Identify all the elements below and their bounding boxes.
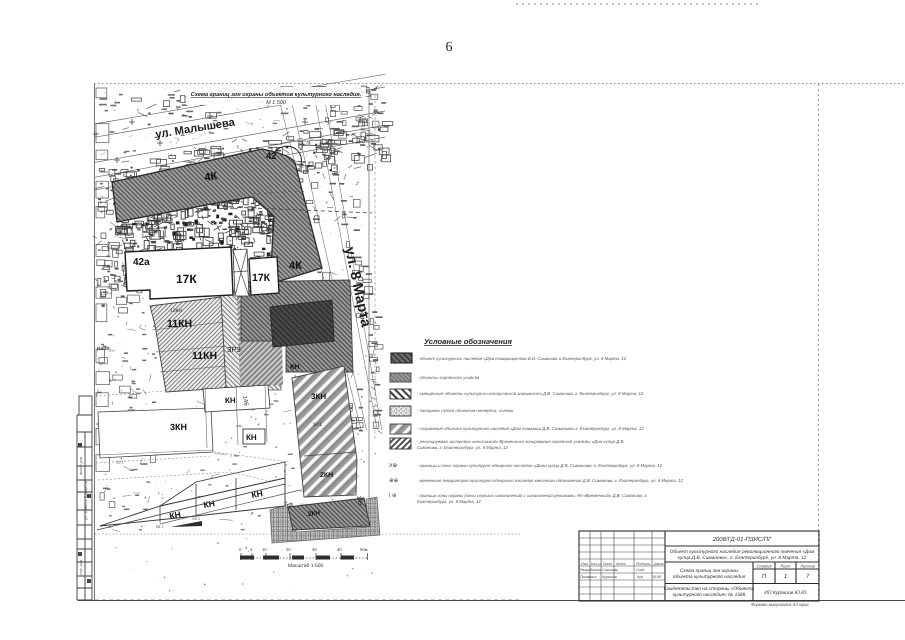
- svg-text:Формат выпускался А3 офис: Формат выпускался А3 офис: [751, 602, 810, 607]
- svg-text:Условные обозначения: Условные обозначения: [424, 337, 512, 346]
- svg-text:Стадия: Стадия: [757, 564, 773, 569]
- svg-text:Согл: Согл: [636, 568, 644, 572]
- svg-text:40: 40: [337, 547, 342, 552]
- svg-text:торг. дом: торг. дом: [79, 559, 83, 575]
- svg-text:П: П: [762, 573, 767, 580]
- svg-text:2008/ГД-01-ПЗИС/ПГ: 2008/ГД-01-ПЗИС/ПГ: [712, 536, 773, 543]
- svg-text:Схема границ зон охраны: Схема границ зон охраны: [680, 568, 739, 574]
- svg-text:жилой дом: жилой дом: [79, 456, 83, 475]
- svg-text:КН: КН: [225, 396, 236, 405]
- svg-text:Схема границ зон охраны объект: Схема границ зон охраны объектов культур…: [191, 91, 362, 98]
- svg-text:объекта культурного наследия: объекта культурного наследия: [673, 574, 746, 580]
- svg-text:КН: КН: [246, 433, 257, 442]
- svg-text:ЗРЗ: ЗРЗ: [227, 345, 241, 354]
- svg-text:- регулируемая застройка «несл: - регулируемая застройка «несложной» Вре…: [417, 439, 625, 444]
- svg-text:Х⊕: Х⊕: [389, 463, 398, 469]
- svg-text:Симанова, г. Екатеринбург, ул.: Симанова, г. Екатеринбург, ул. 8 Марта, …: [417, 445, 508, 450]
- svg-text:- объект культурного наследия: - объект культурного наследия «Дом товар…: [417, 356, 627, 361]
- svg-text:- граница зоны охраны (зоны ст: - граница зоны охраны (зоны строгих огра…: [417, 493, 648, 498]
- svg-text:Лист: Лист: [779, 564, 791, 569]
- svg-text:11КН: 11КН: [167, 318, 192, 330]
- svg-text:13КН: 13КН: [170, 308, 182, 314]
- svg-text:Масштаб 1:500: Масштаб 1:500: [288, 563, 324, 569]
- svg-text:№док: №док: [616, 562, 626, 566]
- svg-text:6: 6: [446, 40, 453, 55]
- svg-text:ИП Курашов Ю.Ю.: ИП Курашов Ю.Ю.: [764, 590, 807, 596]
- svg-text:Проверил: Проверил: [580, 575, 596, 579]
- svg-text:разв.: разв.: [97, 346, 112, 352]
- svg-text:- смещенные объекты культурно-: - смещенные объекты культурно-историческ…: [417, 391, 644, 396]
- svg-text:42: 42: [266, 151, 277, 162]
- svg-text:- панорамы путей объектов инте: - панорамы путей объектов интереса, съем…: [417, 408, 514, 413]
- svg-text:42а: 42а: [133, 257, 150, 268]
- svg-text:Изм.: Изм.: [581, 562, 589, 566]
- svg-text:x: x: [250, 414, 252, 419]
- svg-text:3КН: 3КН: [170, 422, 187, 432]
- svg-text:2КН: 2КН: [308, 510, 321, 518]
- svg-text:Подпись: Подпись: [636, 562, 650, 566]
- svg-text:11КН: 11КН: [192, 350, 217, 362]
- svg-text:М 1:500: М 1:500: [266, 100, 287, 106]
- svg-text:Лист: Лист: [602, 562, 612, 566]
- svg-text:- границы и зоны охраны культу: - границы и зоны охраны культурно-обзорн…: [417, 463, 663, 468]
- svg-text:10: 10: [262, 547, 267, 552]
- svg-text:17К: 17К: [176, 272, 197, 286]
- svg-text:1: 1: [784, 573, 787, 580]
- svg-text:17К: 17К: [252, 272, 271, 284]
- svg-text:- временная территория культур: - временная территория культурно-обзорно…: [417, 478, 684, 483]
- svg-text:- объекты городского усадьба: - объекты городского усадьба: [417, 375, 480, 380]
- svg-text:КН: КН: [290, 364, 299, 371]
- svg-text:2КН: 2КН: [320, 472, 333, 479]
- svg-text:ул. Сакко и Ванцетти: ул. Сакко и Ванцетти: [83, 481, 88, 520]
- svg-text:Дата: Дата: [653, 562, 663, 566]
- svg-text:Соколова: Соколова: [602, 568, 618, 572]
- svg-text:58.1: 58.1: [116, 460, 125, 465]
- svg-text:I ⊛: I ⊛: [389, 493, 397, 499]
- svg-text:⊕⊕: ⊕⊕: [389, 478, 399, 484]
- svg-text:Листов: Листов: [799, 564, 815, 569]
- svg-text:Кол.уч: Кол.уч: [591, 562, 602, 566]
- svg-text:58.1: 58.1: [156, 524, 165, 529]
- svg-text:- сохранение объекта культурно: - сохранение объекта культурного наследи…: [417, 426, 644, 431]
- svg-text:Екатеринбург, ул. 8 Марта, 12: Екатеринбург, ул. 8 Марта, 12: [417, 499, 481, 504]
- svg-text:Свидетельство на стороны «Объе: Свидетельство на стороны «Объекта: [664, 586, 755, 592]
- svg-text:30: 30: [312, 547, 317, 552]
- svg-text:3КН: 3КН: [311, 392, 326, 401]
- svg-text:S=1: S=1: [313, 422, 322, 428]
- svg-text:50м: 50м: [360, 547, 368, 552]
- svg-text:Курашов: Курашов: [602, 575, 617, 579]
- svg-text:культурного наследия» № 1588: культурного наследия» № 1588: [673, 592, 746, 598]
- svg-text:20: 20: [286, 547, 291, 552]
- svg-text:Разработал: Разработал: [580, 568, 601, 572]
- svg-text:4К: 4К: [289, 260, 302, 272]
- svg-text:4К: 4К: [204, 170, 219, 184]
- svg-text:10.08: 10.08: [652, 575, 661, 579]
- svg-text:Кур: Кур: [637, 575, 643, 579]
- svg-text:купца Д.В. Симанова», г. Екате: купца Д.В. Симанова», г. Екатеринбург, у…: [678, 555, 807, 561]
- svg-text:Объект культурного наследия ре: Объект культурного наследия революционно…: [670, 549, 815, 555]
